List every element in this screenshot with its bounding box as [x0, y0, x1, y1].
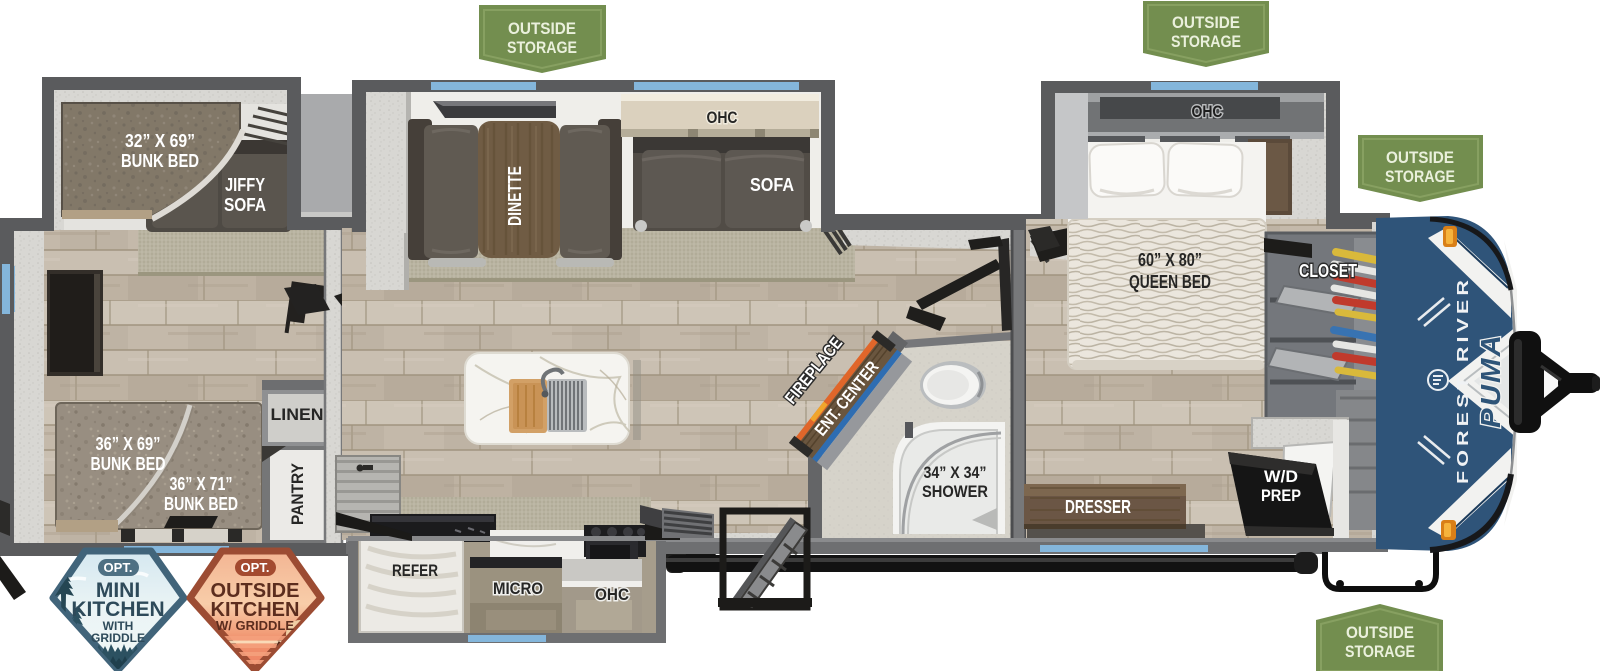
svg-text:36” X 69”: 36” X 69” — [96, 434, 161, 454]
svg-text:OUTSIDE: OUTSIDE — [1386, 148, 1454, 167]
svg-text:SOFA: SOFA — [224, 195, 266, 215]
svg-text:60” X 80”: 60” X 80” — [1138, 250, 1202, 270]
svg-text:W/D: W/D — [1264, 467, 1298, 486]
svg-text:JIFFY: JIFFY — [225, 175, 265, 195]
svg-text:PREP: PREP — [1261, 486, 1301, 505]
svg-text:SOFA: SOFA — [750, 175, 794, 195]
svg-text:OUTSIDE: OUTSIDE — [1172, 13, 1240, 32]
svg-text:STORAGE: STORAGE — [1385, 167, 1455, 186]
svg-text:OPT.: OPT. — [104, 560, 133, 575]
svg-text:34” X 34”: 34” X 34” — [924, 463, 987, 482]
svg-text:QUEEN BED: QUEEN BED — [1129, 272, 1211, 292]
svg-text:OUTSIDE: OUTSIDE — [508, 19, 576, 38]
svg-text:BUNK BED: BUNK BED — [121, 151, 199, 171]
svg-text:PUMA: PUMA — [1475, 333, 1506, 428]
svg-text:BUNK BED: BUNK BED — [164, 494, 238, 514]
svg-text:CLOSET: CLOSET — [1299, 261, 1357, 281]
svg-text:OHC: OHC — [595, 585, 629, 604]
svg-text:STORAGE: STORAGE — [1345, 642, 1415, 661]
svg-text:BUNK BED: BUNK BED — [91, 454, 166, 474]
svg-text:OHC: OHC — [707, 108, 738, 127]
svg-text:GRIDDLE: GRIDDLE — [91, 631, 145, 645]
svg-text:OHC: OHC — [1192, 102, 1223, 121]
svg-text:PANTRY: PANTRY — [288, 462, 307, 525]
svg-text:FOREST RIVER: FOREST RIVER — [1455, 276, 1472, 484]
svg-text:MICRO: MICRO — [493, 579, 543, 598]
svg-text:36” X 71”: 36” X 71” — [170, 474, 233, 494]
svg-text:DRESSER: DRESSER — [1065, 497, 1131, 517]
svg-text:DINETTE: DINETTE — [505, 166, 525, 226]
svg-text:OUTSIDE: OUTSIDE — [1346, 623, 1414, 642]
svg-text:32” X 69”: 32” X 69” — [125, 131, 195, 151]
svg-text:STORAGE: STORAGE — [1171, 32, 1241, 51]
svg-text:OPT.: OPT. — [241, 560, 270, 575]
svg-text:STORAGE: STORAGE — [507, 38, 577, 57]
svg-text:REFER: REFER — [392, 561, 438, 580]
svg-text:SHOWER: SHOWER — [922, 482, 988, 501]
svg-text:LINEN: LINEN — [271, 405, 324, 424]
svg-text:W/ GRIDDLE: W/ GRIDDLE — [216, 618, 294, 633]
svg-text:KITCHEN: KITCHEN — [71, 598, 164, 621]
